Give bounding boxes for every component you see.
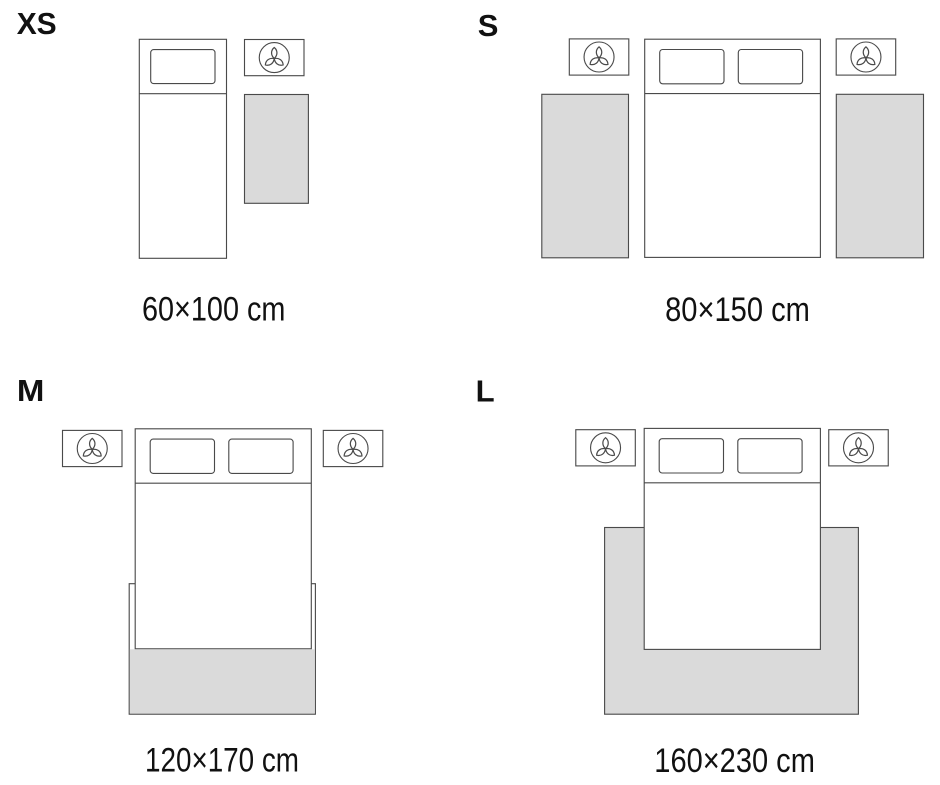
svg-text:S: S (478, 8, 499, 43)
svg-text:L: L (476, 373, 495, 408)
svg-text:120×170 cm: 120×170 cm (145, 741, 299, 779)
svg-text:XS: XS (17, 6, 57, 41)
svg-text:M: M (17, 373, 45, 408)
svg-text:60×100 cm: 60×100 cm (142, 290, 286, 328)
svg-text:80×150 cm: 80×150 cm (665, 291, 810, 329)
svg-text:160×230 cm: 160×230 cm (654, 742, 815, 780)
